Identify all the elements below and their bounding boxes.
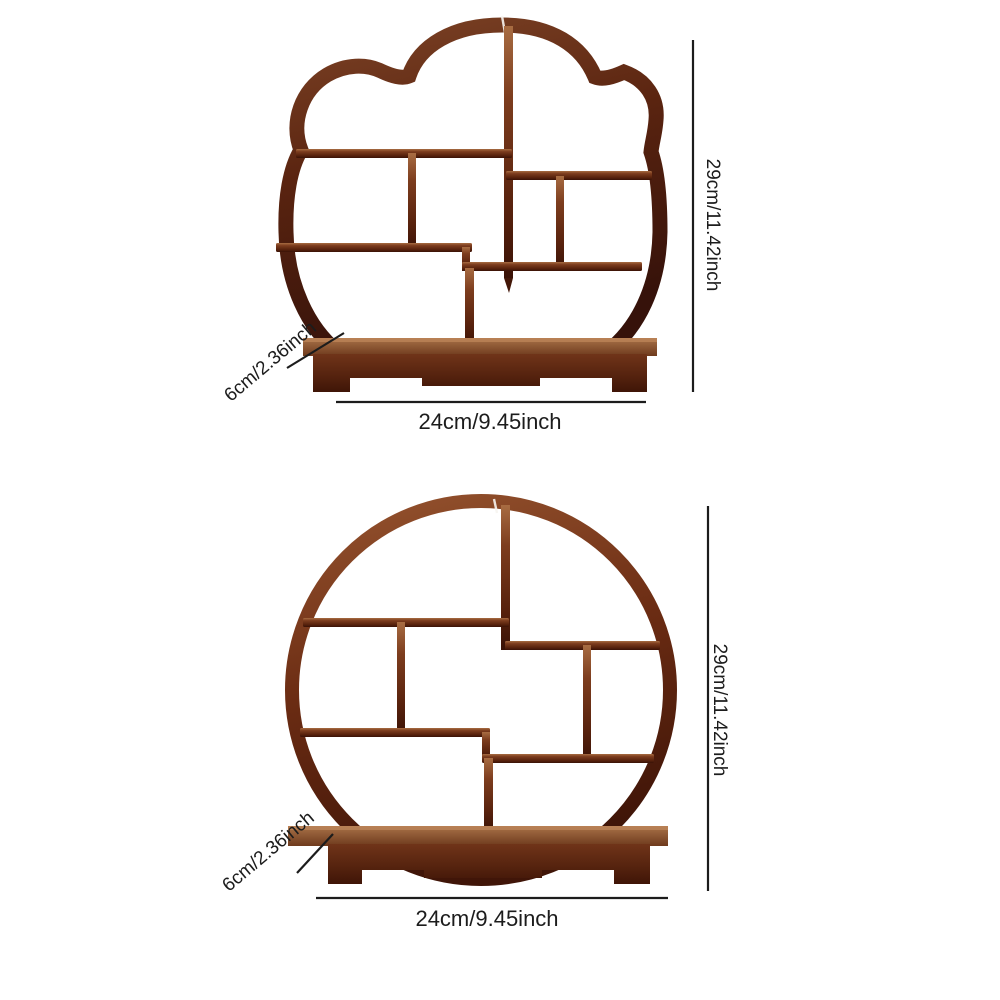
base-top-highlight [288,826,668,830]
product-dimension-sheet: 29cm/11.42inch 24cm/9.45inch 6cm/2.36inc… [0,0,1000,1000]
shelf-base [288,826,668,884]
shelf-board [482,754,654,763]
shelf-board [300,728,490,737]
shelf-divider [583,645,591,763]
round-shelf-figure: 29cm/11.42inch 24cm/9.45inch 6cm/2.36inc… [0,460,1000,1000]
center-post [501,505,510,650]
base-plinth [313,354,647,392]
center-post-tip [504,278,513,293]
shelf-board [276,243,472,252]
shelf-board [462,262,642,271]
width-dimension-label: 24cm/9.45inch [415,906,558,931]
height-dimension-label: 29cm/11.42inch [702,159,723,292]
round-frame [292,501,670,879]
shelf-board [303,618,509,627]
bottom-post [465,268,474,346]
depth-dimension-label: 6cm/2.36inch [218,807,318,896]
shelf-base [303,338,657,392]
shelf-board [506,171,652,180]
width-dimension-label: 24cm/9.45inch [418,409,561,434]
shelf-board [296,149,512,158]
height-dimension-label: 29cm/11.42inch [709,644,730,777]
plum-blossom-shelf-illustration [276,16,660,392]
plum-shelf-figure: 29cm/11.42inch 24cm/9.45inch 6cm/2.36inc… [0,0,1000,460]
bottom-post [484,758,493,832]
shelf-divider [397,622,405,736]
base-top-highlight [303,338,657,342]
depth-dimension-label: 6cm/2.36inch [220,317,320,406]
shelf-divider [556,176,564,270]
round-shelf-illustration [288,499,670,884]
shelf-divider [408,153,416,251]
shelf-board [505,641,660,650]
base-plinth [328,844,650,884]
